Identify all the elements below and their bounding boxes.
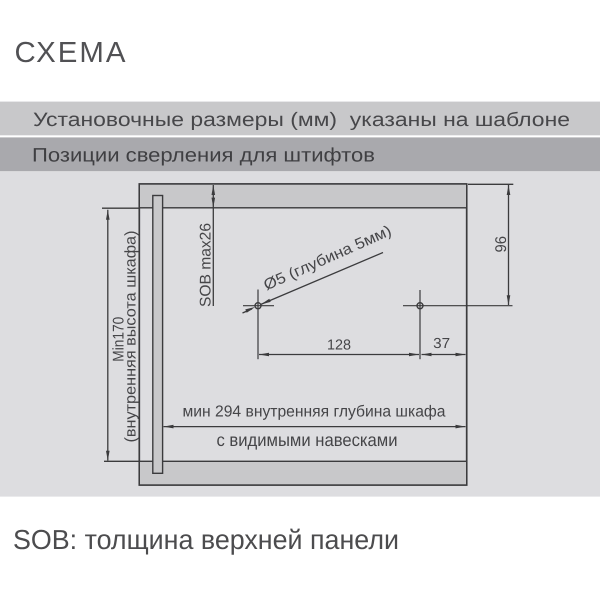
svg-text:SOB max26: SOB max26	[198, 223, 215, 307]
svg-text:СХЕМА: СХЕМА	[15, 37, 128, 69]
svg-text:Установочные размеры (мм) ука: Установочные размеры (мм) указаны на шаб…	[33, 109, 570, 131]
svg-text:мин 294 внутренняя глубина шка: мин 294 внутренняя глубина шкафа	[183, 404, 446, 421]
svg-text:96: 96	[493, 236, 510, 253]
svg-text:37: 37	[433, 336, 450, 352]
svg-text:Позиции сверления для штифтов: Позиции сверления для штифтов	[32, 145, 375, 167]
svg-text:128: 128	[327, 338, 351, 354]
svg-text:SOB: толщина верхней панели: SOB: толщина верхней панели	[13, 524, 399, 555]
svg-text:с видимыми навесками: с видимыми навесками	[217, 430, 398, 450]
svg-text:(внутренняя высота шкафа): (внутренняя высота шкафа)	[122, 231, 139, 443]
